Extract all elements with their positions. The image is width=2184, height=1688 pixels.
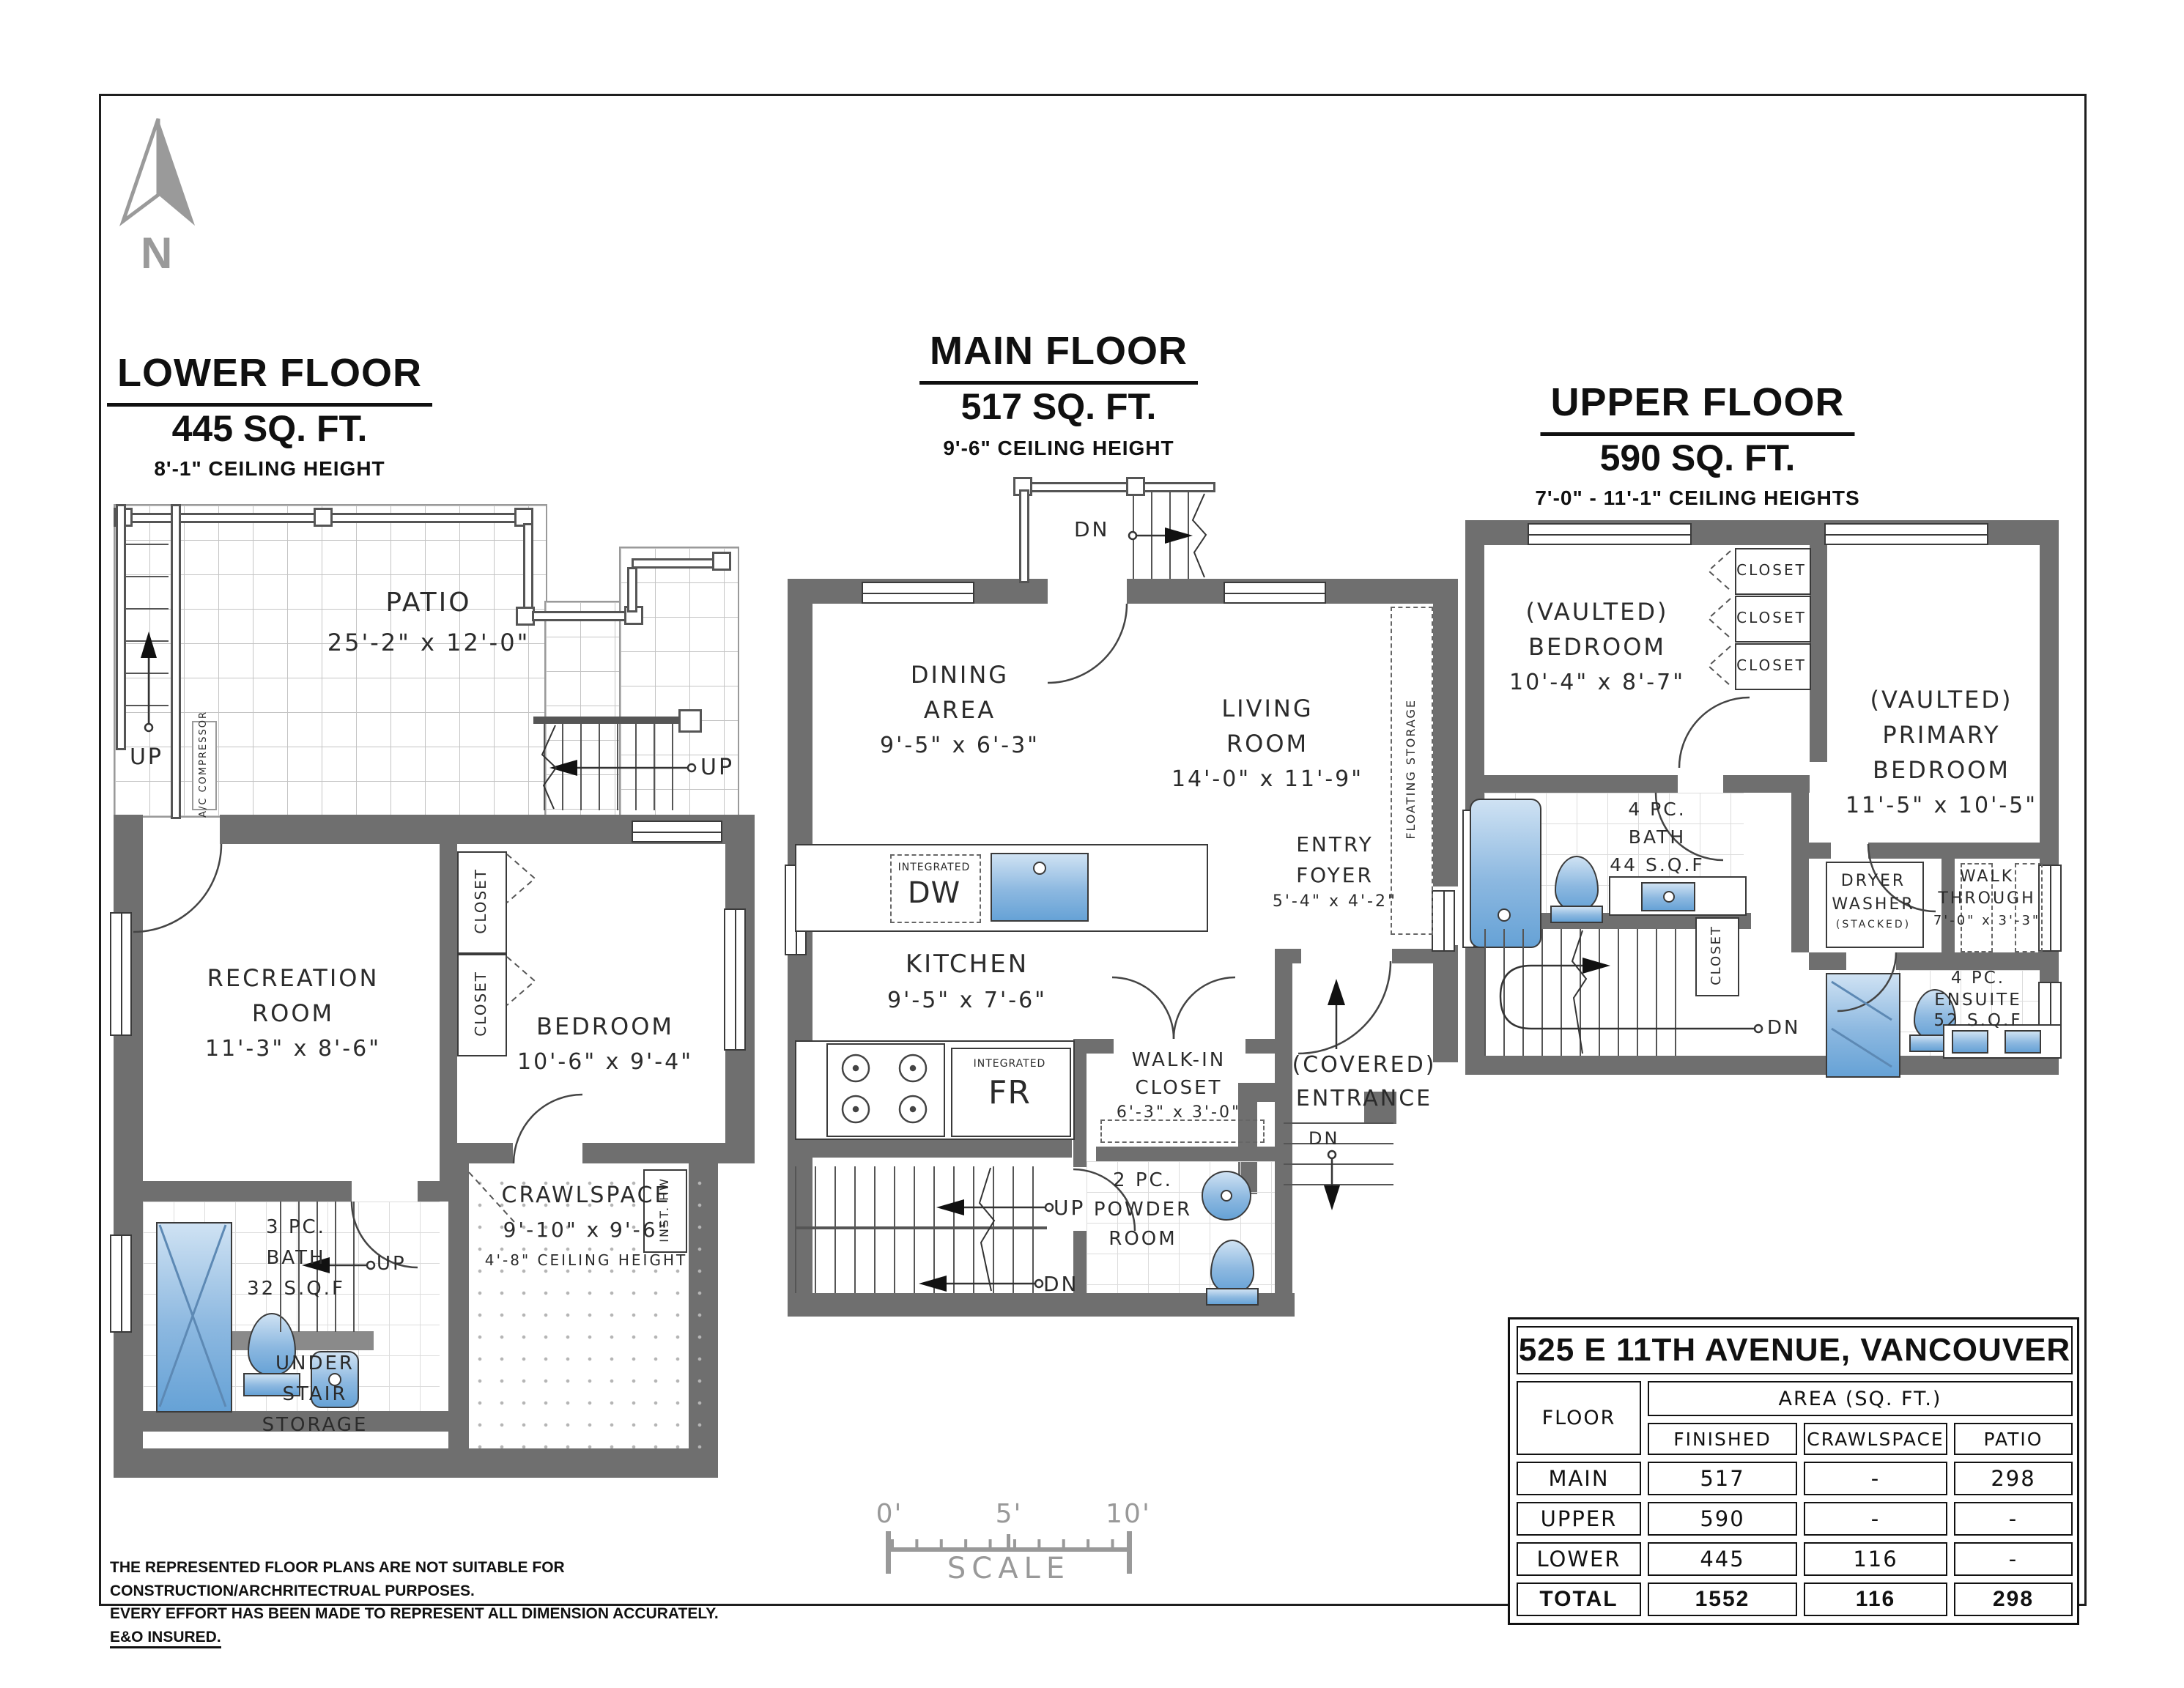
recreation-room-label: RECREATION [207,964,380,992]
patio-railing [523,523,533,612]
bath-dims: 44 S.Q.F [1610,854,1705,876]
wall [1275,949,1292,1293]
primary-bedroom-dims: 11'-5" x 10'-5" [1846,793,2037,818]
closet-label: CLOSET [457,954,504,1054]
instant-hot-water-label: INST. HW [643,1169,684,1250]
laundry-label: (STACKED) [1836,919,1911,930]
patio-railing [532,611,633,621]
window [724,908,746,1051]
patio-label: PATIO [385,588,471,618]
disclaimer-eo-insured: E&O INSURED. [110,1629,221,1648]
col-header-floor: FLOOR [1517,1381,1641,1455]
upper-floor-title: UPPER FLOOR [1540,380,1854,436]
bath-label: BATH [266,1247,325,1269]
walkin-dims: 6'-3" x 3'-0" [1117,1103,1241,1122]
table-cell: MAIN [1517,1462,1641,1495]
table-title: 525 E 11TH AVENUE, VANCOUVER [1517,1326,2073,1374]
recreation-room-dims: 11'-3" x 8'-6" [205,1036,381,1062]
window [1528,523,1692,545]
closet-label: CLOSET [1736,609,1807,626]
upper-floor-ceiling: 7'-0" - 11'-1" CEILING HEIGHTS [1535,486,1859,510]
closet-label: CLOSET [1695,917,1736,993]
wall [114,1448,718,1478]
stair-up-label: UP [1054,1196,1085,1220]
walkin-label: CLOSET [1136,1077,1223,1099]
scale-label: SCALE [947,1552,1070,1585]
dining-label: AREA [924,696,996,724]
table-cell: - [1804,1502,1947,1536]
toilet-tank [1550,906,1603,923]
upper-stairs [1484,929,1694,1056]
table-cell-total: 116 [1804,1582,1947,1616]
north-label: N [141,229,172,278]
storage-label: STAIR [283,1383,348,1405]
scale-endcap [886,1531,891,1574]
col-header-finished: FINISHED [1648,1423,1797,1455]
patio-railing [632,558,722,569]
table-cell-total: TOTAL [1517,1582,1641,1616]
window [110,912,132,1036]
living-label: ROOM [1226,730,1308,758]
lower-floor-ceiling: 8'-1" CEILING HEIGHT [154,457,385,481]
primary-bedroom-label: BEDROOM [1873,756,2010,784]
stair-top-rail [533,717,690,724]
entrance-label: (COVERED) [1292,1052,1437,1078]
living-dims: 14'-0" x 11'-9" [1171,766,1363,792]
patio-railing [627,567,637,612]
wall [1809,843,1831,859]
wall [1465,775,1678,793]
powder-label: 2 PC. [1113,1169,1173,1191]
sink [1952,1030,1988,1054]
sink-drain [1221,1190,1232,1202]
wall [582,1143,755,1163]
wall [1073,1231,1087,1311]
railing-post [1126,477,1145,496]
wall [1245,1039,1275,1054]
scale-tick-10: 10' [1106,1499,1151,1529]
railing-post [712,552,731,571]
storage-label: STORAGE [262,1414,369,1436]
stair-up-label: UP [377,1253,407,1275]
main-floor-ceiling: 9'-6" CEILING HEIGHT [943,437,1174,460]
north-arrow-icon: N [110,110,227,278]
area-summary-table: 525 E 11TH AVENUE, VANCOUVER FLOOR AREA … [1508,1317,2079,1625]
stair-up-label: UP [130,744,163,770]
window [632,821,722,843]
stair-up-label: UP [700,755,734,780]
wall [1073,1039,1087,1167]
stair-dn-label: DN [1043,1272,1079,1296]
scale-endcap [1127,1531,1132,1574]
vaulted-bedroom-label: (VAULTED) [1526,598,1669,626]
table-cell: 445 [1648,1542,1797,1576]
wall [1810,520,1827,762]
stair-rail [116,504,126,750]
bedroom-label: BEDROOM [536,1013,674,1040]
dining-label: DINING [911,661,1009,689]
exterior-stair-up-left [126,544,169,736]
wall [1868,843,2059,859]
walkin-label: WALK-IN [1132,1049,1226,1071]
table-cell: - [1954,1502,2073,1536]
bath-dims: 32 S.Q.F [247,1278,345,1300]
bathtub [1470,799,1541,948]
foyer-label: ENTRY [1296,832,1374,856]
bath-label: BATH [1629,826,1686,848]
wall [1791,775,1809,952]
deck-railing [1019,489,1029,583]
exterior-stair-up-right [544,724,689,810]
bath-label: 4 PC. [1628,799,1686,820]
storage-label: UNDER [275,1352,355,1374]
kitchen-dims: 9'-5" x 7'-6" [887,988,1047,1013]
table-cell: 590 [1648,1502,1797,1536]
closet-label: CLOSET [1736,561,1807,579]
deck-railing [1021,482,1215,492]
wall [788,1137,1072,1158]
shower [156,1222,232,1413]
bedroom-dims: 10'-6" x 9'-4" [517,1049,693,1075]
wall [1896,952,2059,970]
dishwasher-label: INTEGRATED [898,862,971,873]
recreation-room-label: ROOM [252,999,334,1027]
wall [1083,1039,1114,1054]
fridge-label: FR [988,1074,1031,1111]
closet-label: CLOSET [457,851,504,951]
stair-dn-label: DN [1074,517,1110,541]
scale-tick-0: 0' [876,1499,903,1529]
living-label: LIVING [1221,695,1313,722]
entrance-label: ENTRANCE [1296,1086,1432,1111]
wardrobe-box [2015,863,2043,952]
window [110,1234,132,1333]
railing-post [314,508,333,527]
lower-floor-title: LOWER FLOOR [107,350,432,407]
table-cell: UPPER [1517,1502,1641,1536]
floating-storage-label: FLOATING STORAGE [1389,607,1432,932]
window [1824,523,1988,545]
window [1224,582,1326,604]
wall [456,1143,513,1163]
railing-post [678,709,702,733]
walkthrough-label: WALK [1960,867,2014,886]
toilet-tank [1206,1288,1259,1306]
crawlspace-ceiling: 4'-8" CEILING HEIGHT [485,1251,687,1269]
table-cell: LOWER [1517,1542,1641,1576]
wall [1433,579,1458,886]
main-stairs [795,1166,1047,1293]
powder-label: ROOM [1108,1228,1177,1250]
lower-floor-area: 445 SQ. FT. [172,407,368,450]
primary-bedroom-label: PRIMARY [1882,721,2000,749]
ac-compressor-label: A/C COMPRESSOR [189,718,217,810]
primary-bedroom-label: (VAULTED) [1870,686,2013,714]
table-cell: - [1804,1462,1947,1495]
powder-label: POWDER [1094,1199,1192,1221]
walkthrough-dims: 7'-0" x 3'-3" [1933,913,2040,928]
ensuite-shower [1826,973,1900,1078]
wall [1465,520,1484,1075]
fridge-label: INTEGRATED [974,1058,1046,1070]
ensuite-label: ENSUITE [1934,991,2022,1010]
kitchen-label: KITCHEN [906,949,1029,979]
dining-dims: 9'-5" x 6'-3" [880,733,1040,758]
vaulted-bedroom-label: BEDROOM [1528,633,1666,661]
table-cell: - [1954,1542,2073,1576]
wall [440,815,457,1181]
main-floor-title: MAIN FLOOR [919,328,1198,385]
wall [1275,949,1301,963]
disclaimer-line1: THE REPRESENTED FLOOR PLANS ARE NOT SUIT… [110,1559,565,1599]
upper-floor-area: 590 SQ. FT. [1600,437,1796,479]
foyer-dims: 5'-4" x 4'-2" [1273,892,1397,911]
scale-tick-5: 5' [996,1499,1023,1529]
walkin-shelf [1100,1119,1265,1143]
walkthrough-label: THROUGH [1938,889,2035,908]
floorplan-page: N LOWER FLOOR 445 SQ. FT. 8'-1" CEILING … [0,0,2184,1688]
bath-label: 3 PC. [266,1216,326,1238]
stove [826,1043,945,1137]
laundry-label: WASHER [1832,895,1914,914]
ensuite-dims: 52 S.Q.F [1933,1011,2022,1030]
deck-stair-down [1133,492,1206,579]
ensuite-label: 4 PC. [1951,969,2005,988]
col-header-patio: PATIO [1954,1423,2073,1455]
disclaimer-line2: EVERY EFFORT HAS BEEN MADE TO REPRESENT … [110,1605,719,1622]
wall [1809,952,1846,970]
foyer-label: FOYER [1296,863,1374,887]
window [1432,890,1455,952]
closet-label: CLOSET [1736,656,1807,674]
window [862,582,974,604]
laundry-label: DRYER [1841,872,1906,890]
table-cell: 298 [1954,1462,2073,1495]
tub-drain [1498,908,1511,922]
stair-dn-label: DN [1767,1017,1800,1039]
table-cell-total: 1552 [1648,1582,1797,1616]
dishwasher-label: DW [908,876,960,910]
stair-rail [171,504,181,819]
faucet [1033,862,1046,875]
disclaimer: THE REPRESENTED FLOOR PLANS ARE NOT SUIT… [110,1556,740,1648]
sink-drain [1663,891,1675,903]
patio-dims: 25'-2" x 12'-0" [327,629,530,656]
vaulted-bedroom-dims: 10'-4" x 8'-7" [1509,670,1685,695]
col-header-area: AREA (SQ. FT.) [1648,1381,2073,1416]
table-cell-total: 298 [1954,1582,2073,1616]
steps-dn-label: DN [1308,1128,1339,1149]
table-cell: 116 [1804,1542,1947,1576]
main-floor-area: 517 SQ. FT. [961,385,1157,428]
table-cell: 517 [1648,1462,1797,1495]
col-header-crawlspace: CRAWLSPACE [1804,1423,1947,1455]
wall [114,1181,352,1202]
sink [2005,1030,2041,1054]
